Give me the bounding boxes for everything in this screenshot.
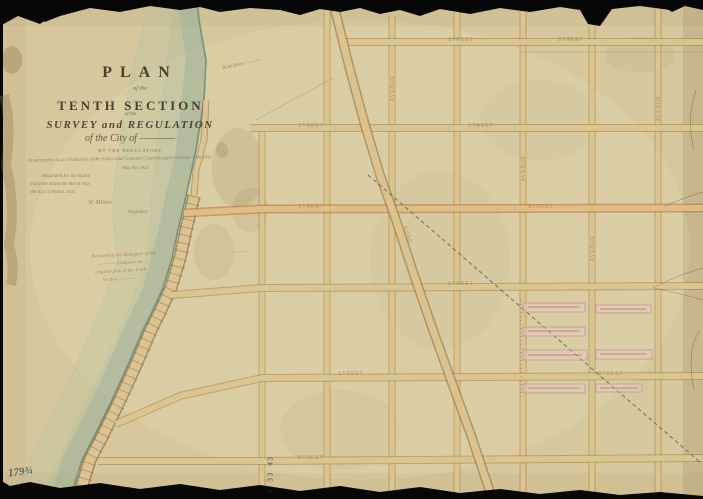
title-of-the-2: of the: [48, 112, 213, 117]
note-line: Regulated for the Board: [42, 174, 90, 179]
street-label: STREET: [448, 281, 474, 287]
note-signature: W. Milnor: [88, 200, 112, 206]
street-label: STREET: [338, 371, 364, 377]
note-line: and plan dated the 9th of Sept: [30, 182, 90, 187]
street-label: AVENUE: [521, 155, 527, 181]
note-signature-title: Regulator: [128, 210, 148, 215]
street-label: AVENUE: [390, 75, 396, 101]
street-label: STREET: [468, 123, 494, 129]
catalog-stamp: C 33 43: [266, 456, 274, 493]
note-line: 9th day of March 1831: [30, 190, 76, 195]
street-label: STREET: [448, 37, 474, 43]
title-of-the: of the: [95, 86, 185, 92]
street-label: AVENUE: [590, 235, 596, 261]
street-label: STREET: [558, 37, 584, 43]
street-label: STREET: [298, 123, 324, 129]
title-survey: SURVEY and REGULATION: [40, 119, 220, 131]
street-label: AVENUE: [656, 95, 662, 121]
note-line: Aug 4th 1831: [122, 166, 149, 171]
map-sheet: PLAN of the TENTH SECTION of the SURVEY …: [0, 0, 703, 499]
street-label: STREET: [598, 371, 624, 377]
street-label: STREET: [298, 204, 324, 210]
title-city-script: of the City of ————: [60, 133, 200, 144]
red-ink-note: Received of the Managers of the ———— Com…: [91, 250, 157, 285]
map-title: PLAN: [95, 64, 185, 82]
title-subline: BY THE REGULATORS: [60, 148, 200, 153]
street-label: STREET: [298, 455, 324, 461]
street-label: STREET: [528, 204, 554, 210]
